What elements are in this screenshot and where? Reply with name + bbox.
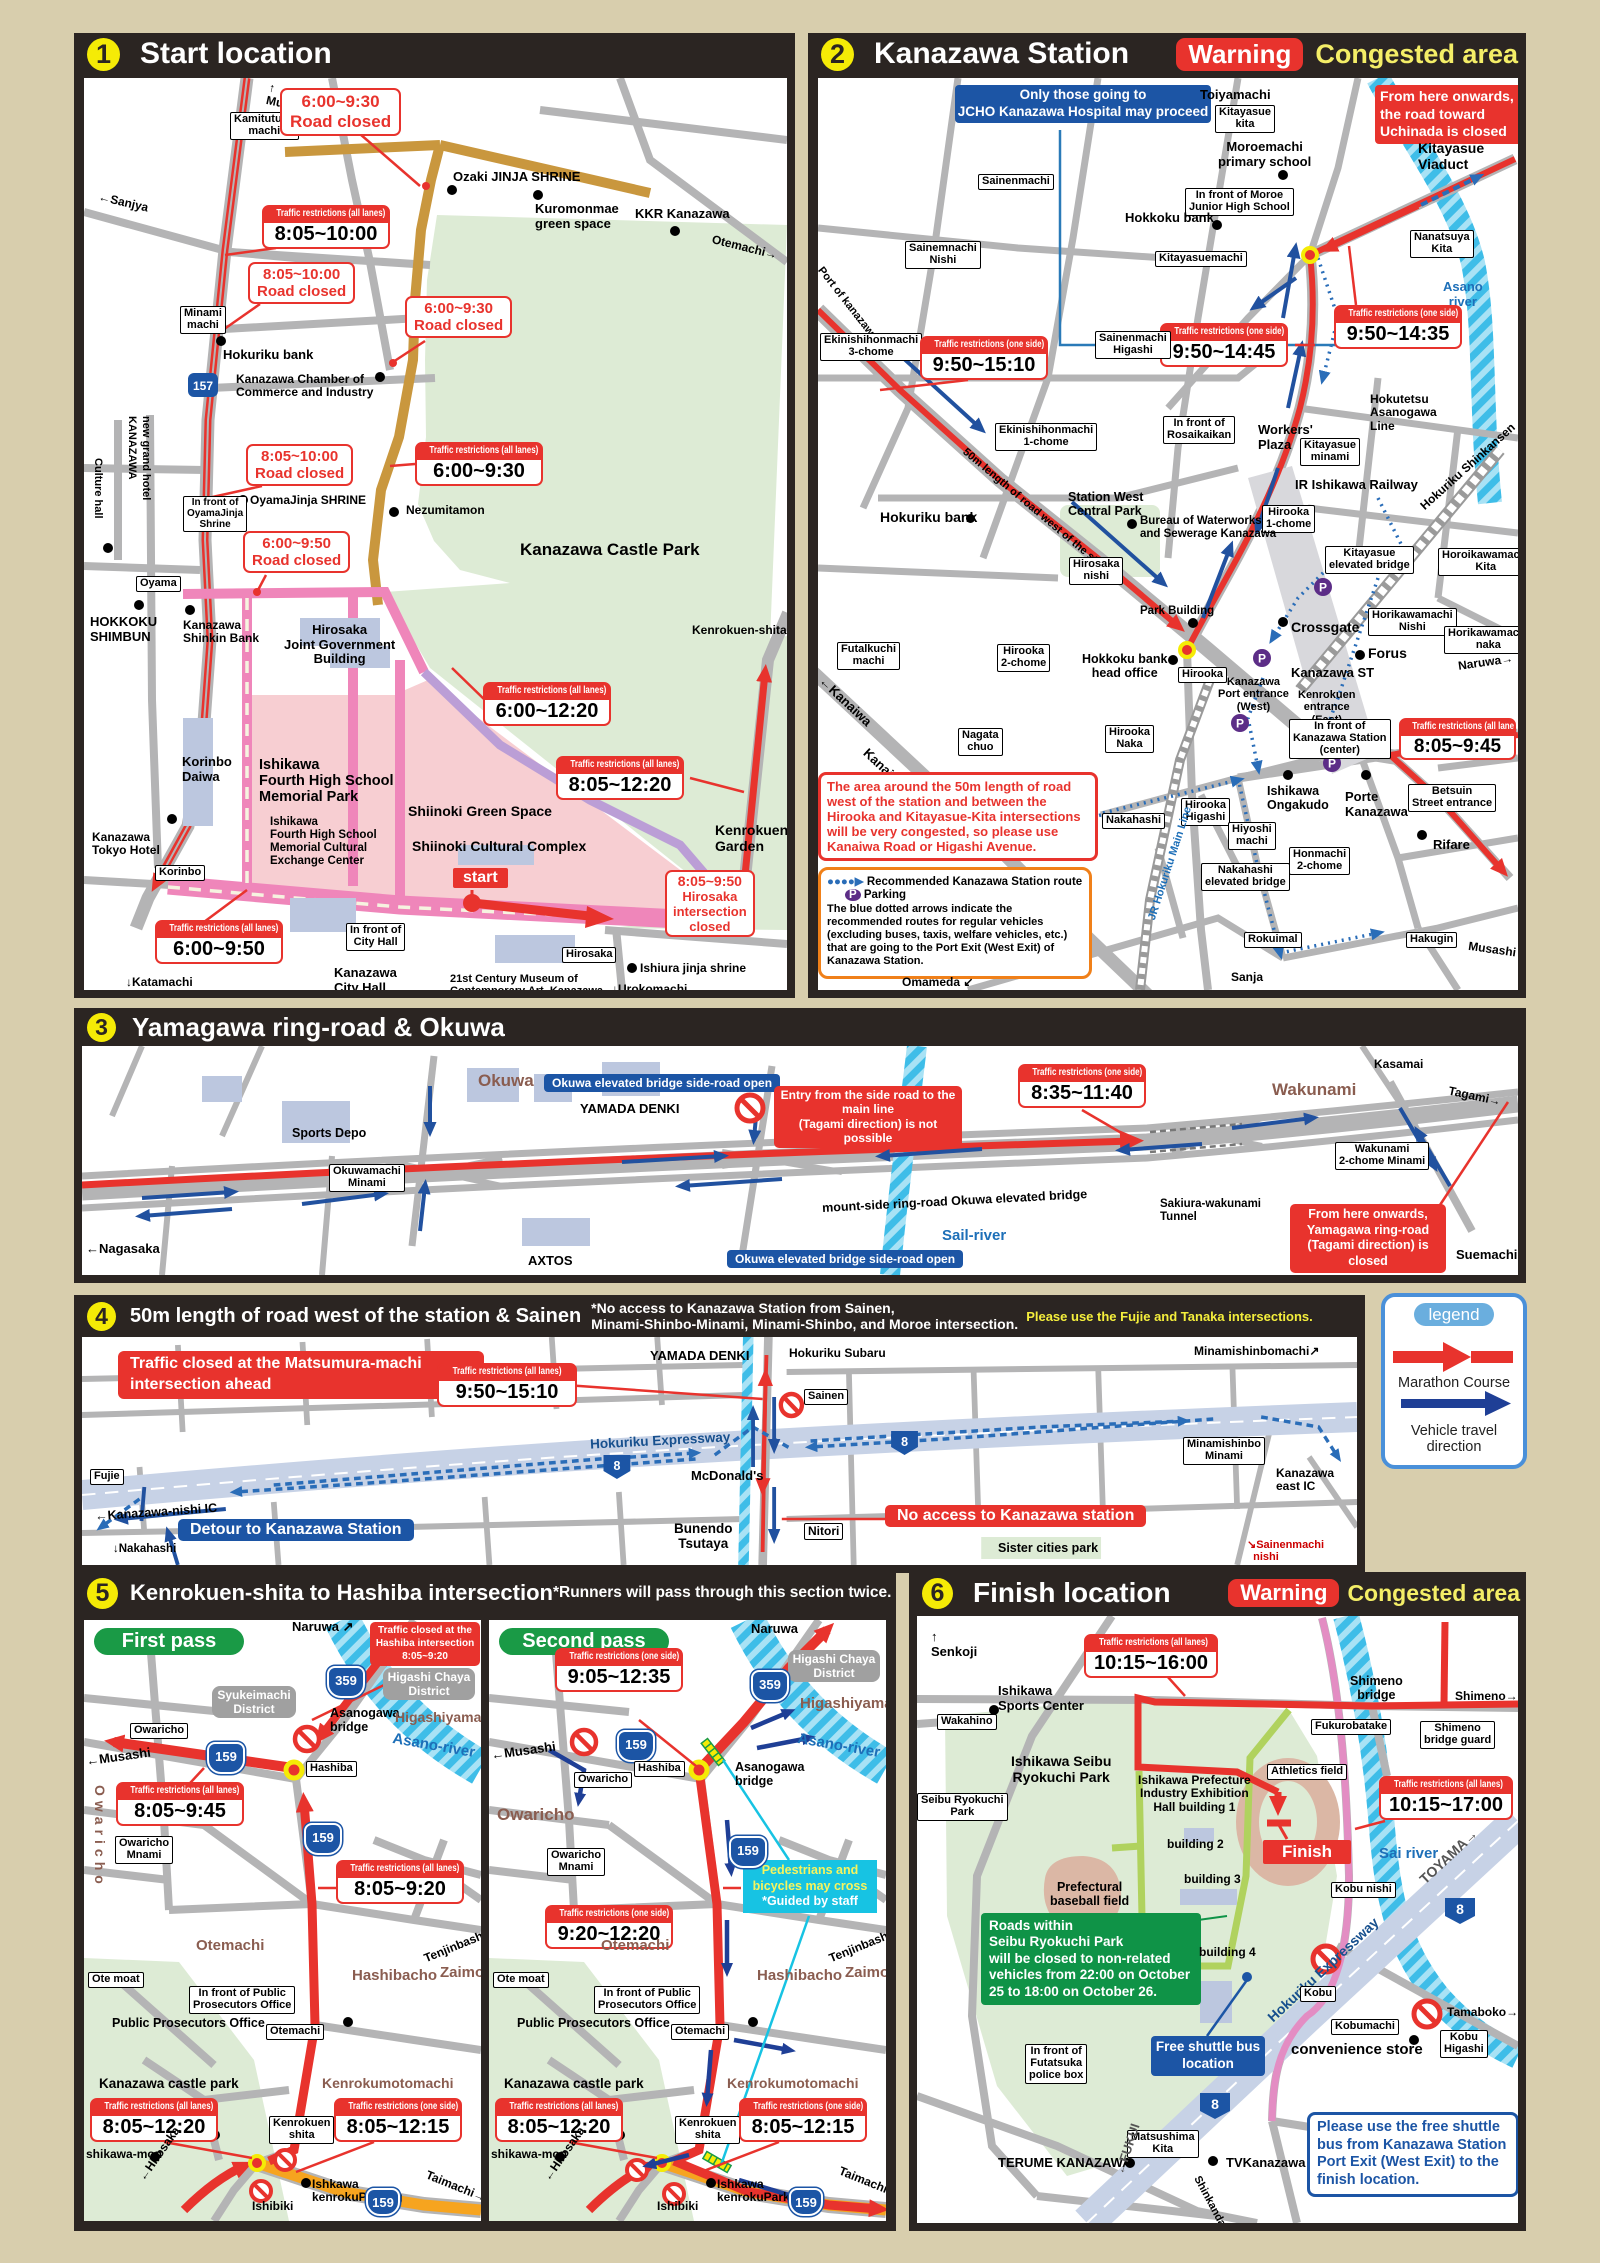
svg-text:P: P: [1236, 717, 1244, 731]
svg-text:8: 8: [1211, 2096, 1219, 2112]
svg-text:P: P: [1319, 581, 1327, 595]
svg-text:Vehicle travel: Vehicle travel: [1411, 1423, 1497, 1439]
svg-text:direction: direction: [1427, 1439, 1482, 1455]
svg-text:157: 157: [193, 379, 213, 393]
svg-text:8: 8: [901, 1434, 908, 1449]
svg-text:8: 8: [613, 1458, 620, 1473]
svg-text:P: P: [1258, 652, 1266, 666]
svg-text:8: 8: [1456, 1901, 1464, 1917]
svg-text:Marathon Course: Marathon Course: [1398, 1375, 1510, 1391]
